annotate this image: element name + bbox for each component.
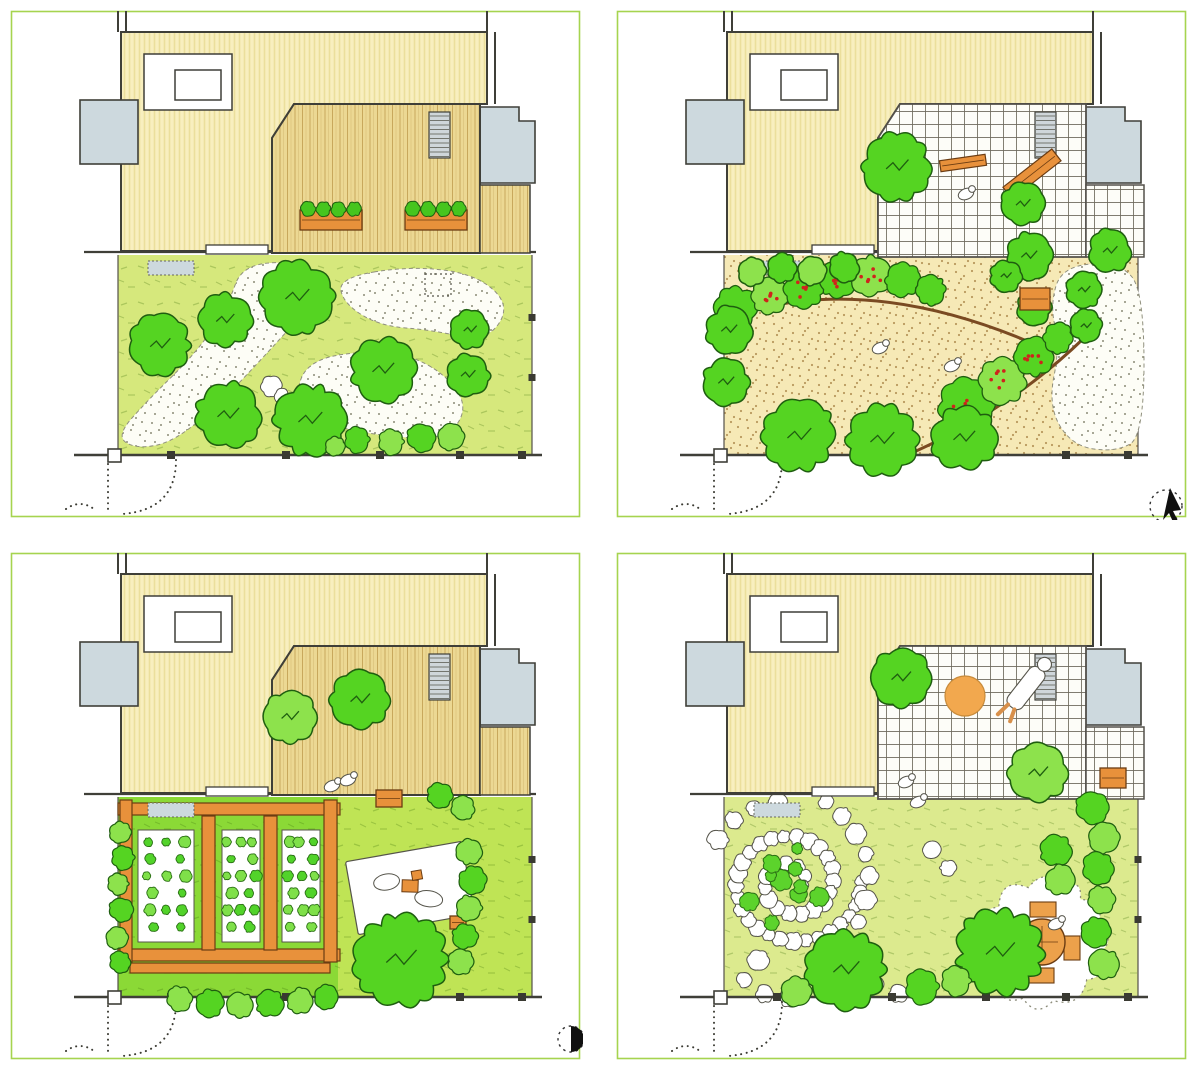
shrub bbox=[315, 984, 338, 1009]
bay-window-box bbox=[686, 642, 744, 706]
shrub bbox=[1040, 834, 1072, 865]
tree bbox=[830, 252, 860, 283]
door-step bbox=[206, 245, 268, 254]
chair bbox=[1064, 936, 1080, 960]
stone bbox=[845, 823, 866, 844]
berry-dot bbox=[1026, 358, 1030, 362]
fence-post bbox=[1135, 856, 1142, 863]
vegetable-plant bbox=[176, 855, 185, 864]
deck-stairs bbox=[429, 654, 450, 700]
vegetable-plant bbox=[144, 838, 153, 847]
vegetable-plant bbox=[161, 905, 170, 914]
shrub bbox=[1088, 949, 1119, 980]
planter-box bbox=[1100, 768, 1126, 788]
stone bbox=[725, 812, 743, 829]
planter-box bbox=[376, 790, 402, 807]
fence-post bbox=[376, 451, 384, 459]
fence-post bbox=[1062, 993, 1070, 1001]
berry-dot bbox=[995, 371, 999, 375]
timber-beam bbox=[202, 816, 215, 950]
fence-post bbox=[529, 374, 536, 381]
vegetable-plant bbox=[309, 838, 318, 846]
fence-post bbox=[456, 993, 464, 1001]
stone bbox=[747, 950, 770, 970]
fence-post bbox=[518, 993, 526, 1001]
herb-plant bbox=[764, 915, 779, 931]
stone bbox=[755, 985, 773, 1003]
grate-mat bbox=[754, 803, 800, 817]
stone bbox=[833, 808, 851, 826]
berry-dot bbox=[1030, 354, 1034, 358]
chair bbox=[1030, 902, 1056, 917]
berry-dot bbox=[1002, 379, 1006, 383]
berry-dot bbox=[997, 386, 1001, 390]
fence-post bbox=[456, 451, 464, 459]
berry-dot bbox=[1027, 354, 1031, 358]
timber-beam bbox=[264, 816, 277, 950]
tree bbox=[871, 648, 932, 709]
berry-dot bbox=[952, 405, 956, 409]
vegetable-plant bbox=[282, 871, 294, 882]
bay-window-box bbox=[80, 100, 138, 164]
berry-dot bbox=[1002, 369, 1006, 373]
tree bbox=[798, 256, 827, 286]
fence-post bbox=[1062, 451, 1070, 459]
vegetable-plant bbox=[178, 836, 190, 848]
vegetable-plant bbox=[177, 923, 186, 931]
fence-post bbox=[518, 451, 526, 459]
window-box bbox=[175, 70, 221, 100]
vegetable-plant bbox=[147, 887, 159, 898]
vegetable-plant bbox=[176, 905, 187, 916]
planter-box bbox=[1020, 288, 1050, 310]
shrub bbox=[782, 976, 813, 1007]
vegetable-plant bbox=[149, 923, 159, 932]
fence-post bbox=[529, 314, 536, 321]
window-box bbox=[781, 612, 827, 642]
door-step bbox=[206, 787, 268, 796]
garden-plan-top-right bbox=[614, 8, 1189, 520]
garden-plan-bottom-left bbox=[8, 550, 583, 1062]
timber-beam bbox=[324, 800, 337, 962]
berry-dot bbox=[871, 267, 875, 271]
berry-dot bbox=[1037, 354, 1041, 358]
tree bbox=[990, 260, 1023, 292]
vegetable-plant bbox=[178, 889, 186, 897]
stone bbox=[923, 841, 942, 859]
fence-post bbox=[773, 993, 781, 1001]
vegetable-plant bbox=[249, 905, 260, 915]
shrub bbox=[106, 927, 128, 950]
tree bbox=[768, 252, 797, 283]
herb-plant bbox=[788, 862, 802, 876]
bay-window-box bbox=[80, 642, 138, 706]
garden-plan-bottom-right bbox=[614, 550, 1189, 1062]
vegetable-plant bbox=[142, 872, 150, 880]
berry-dot bbox=[835, 285, 839, 289]
fence-post bbox=[529, 856, 536, 863]
gate-post bbox=[108, 991, 121, 1004]
shrub bbox=[448, 949, 474, 975]
herb-plant bbox=[794, 880, 808, 894]
vegetable-plant bbox=[244, 889, 254, 898]
vegetable-plant bbox=[308, 904, 320, 915]
berry-dot bbox=[1039, 361, 1043, 365]
fence-post bbox=[167, 451, 175, 459]
fence-post bbox=[1135, 916, 1142, 923]
vegetable-plant bbox=[283, 905, 292, 914]
tree bbox=[1007, 742, 1069, 803]
berry-dot bbox=[859, 275, 863, 279]
gate-post bbox=[714, 449, 727, 462]
vegetable-plant bbox=[285, 922, 295, 931]
shrub bbox=[227, 992, 254, 1018]
tree bbox=[329, 669, 391, 730]
timber-beam bbox=[130, 963, 330, 973]
vegetable-plant bbox=[235, 870, 247, 881]
vegetable-plant bbox=[227, 856, 236, 863]
fence-post bbox=[529, 916, 536, 923]
vegetable-plant bbox=[297, 871, 307, 880]
tree bbox=[861, 132, 932, 202]
berry-dot bbox=[965, 399, 969, 403]
play-ball bbox=[945, 676, 985, 716]
berry-dot bbox=[872, 275, 876, 279]
shrub bbox=[110, 821, 132, 843]
berry-dot bbox=[798, 295, 802, 299]
vegetable-plant bbox=[222, 837, 232, 847]
vegetable-plant bbox=[180, 870, 193, 882]
grate-mat bbox=[148, 803, 194, 817]
shrub bbox=[196, 989, 224, 1018]
berry-dot bbox=[775, 297, 779, 301]
vegetable-plant bbox=[223, 872, 231, 880]
stone bbox=[818, 795, 834, 809]
timber-beam bbox=[118, 949, 340, 961]
herb-plant bbox=[763, 855, 781, 873]
berry-dot bbox=[804, 287, 808, 291]
berry-dot bbox=[769, 293, 773, 297]
shrub bbox=[451, 795, 475, 820]
shrub bbox=[438, 423, 465, 450]
vegetable-plant bbox=[162, 838, 171, 846]
vegetable-plant bbox=[293, 837, 305, 848]
berry-dot bbox=[796, 281, 800, 285]
garden-plan-top-left bbox=[8, 8, 583, 520]
herb-plant bbox=[792, 843, 803, 855]
fence-post bbox=[888, 993, 896, 1001]
vegetable-plant bbox=[307, 923, 317, 932]
tree bbox=[739, 257, 767, 287]
deck-stairs bbox=[429, 112, 450, 158]
bay-window-box bbox=[686, 100, 744, 164]
vegetable-plant bbox=[227, 922, 237, 931]
window-box bbox=[175, 612, 221, 642]
gate-post bbox=[714, 991, 727, 1004]
berry-dot bbox=[764, 298, 768, 302]
fence-post bbox=[282, 451, 290, 459]
vegetable-plant bbox=[226, 887, 239, 899]
shrub bbox=[256, 989, 284, 1016]
stone bbox=[764, 831, 779, 846]
grate-mat bbox=[148, 261, 194, 275]
berry-dot bbox=[989, 378, 993, 382]
door-step bbox=[812, 787, 874, 796]
tree bbox=[263, 690, 317, 744]
vegetable-plant bbox=[234, 904, 245, 915]
shrub bbox=[326, 436, 346, 456]
window-box bbox=[781, 70, 827, 100]
fence-post bbox=[1124, 993, 1132, 1001]
shrub bbox=[456, 838, 482, 864]
gate-post bbox=[108, 449, 121, 462]
berry-dot bbox=[879, 278, 883, 282]
berry-dot bbox=[833, 282, 837, 286]
scanned-garden-plan-page bbox=[0, 0, 1197, 1080]
fence-post bbox=[1124, 451, 1132, 459]
vegetable-plant bbox=[247, 838, 256, 847]
berry-dot bbox=[866, 280, 870, 284]
vegetable-plant bbox=[250, 870, 263, 882]
